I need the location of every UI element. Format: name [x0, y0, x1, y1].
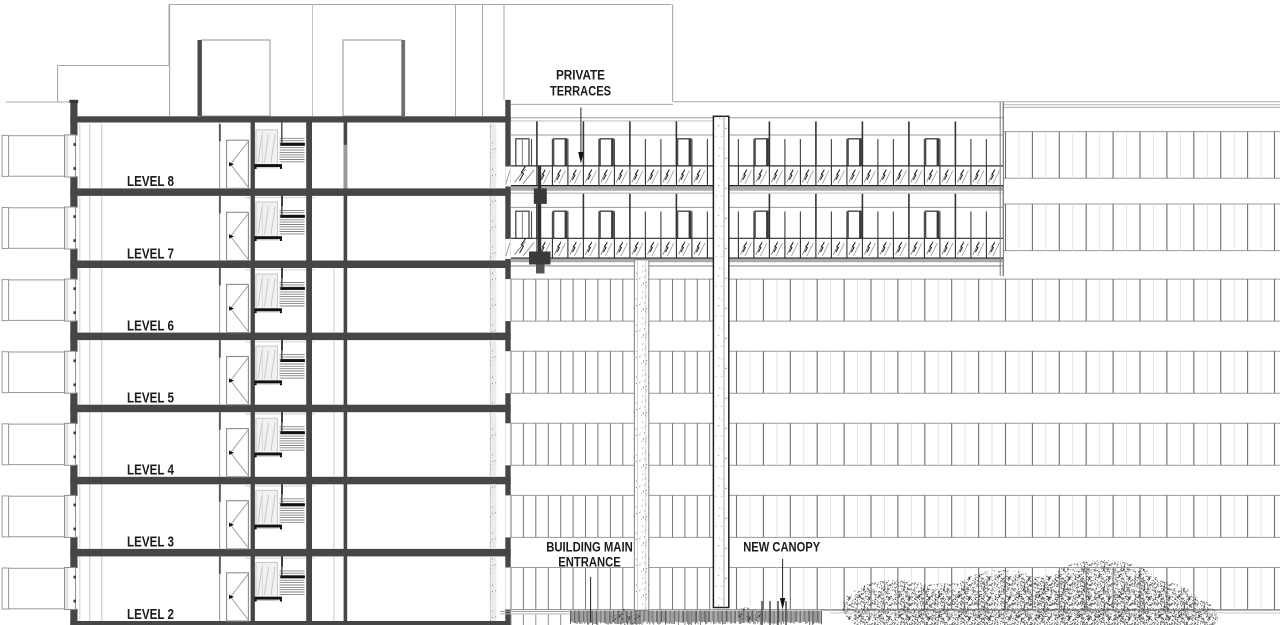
svg-text:LEVEL 5: LEVEL 5 — [127, 390, 174, 407]
svg-text:LEVEL 2: LEVEL 2 — [127, 606, 174, 623]
svg-text:BUILDING MAIN: BUILDING MAIN — [546, 539, 633, 554]
svg-text:LEVEL 8: LEVEL 8 — [127, 173, 174, 190]
svg-text:PRIVATE: PRIVATE — [556, 68, 605, 83]
svg-text:LEVEL 6: LEVEL 6 — [127, 317, 174, 334]
svg-text:LEVEL 7: LEVEL 7 — [127, 245, 174, 262]
svg-text:LEVEL 3: LEVEL 3 — [127, 534, 174, 551]
svg-text:LEVEL 4: LEVEL 4 — [127, 462, 174, 479]
svg-text:TERRACES: TERRACES — [550, 84, 611, 99]
svg-text:NEW CANOPY: NEW CANOPY — [743, 539, 820, 554]
svg-text:ENTRANCE: ENTRANCE — [558, 554, 621, 569]
